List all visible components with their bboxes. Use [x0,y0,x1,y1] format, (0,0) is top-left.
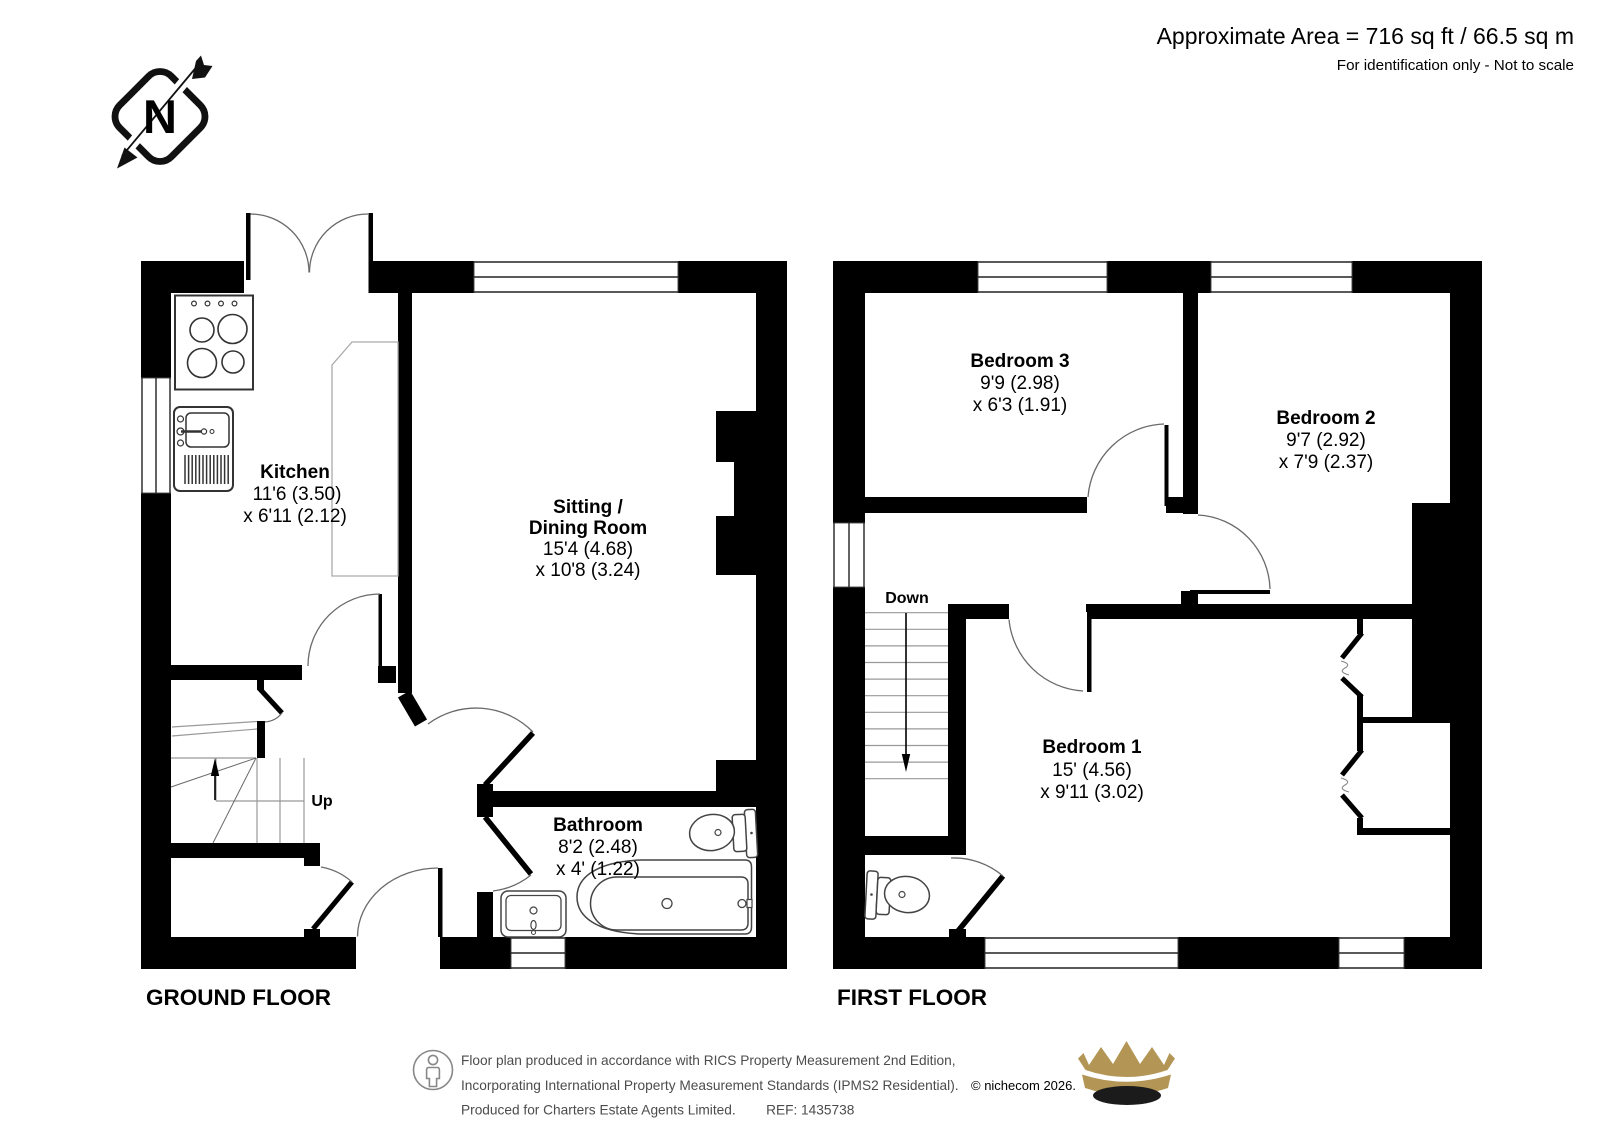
svg-text:9'7 (2.92): 9'7 (2.92) [1286,430,1366,451]
svg-text:Bathroom: Bathroom [553,815,643,836]
svg-text:Up: Up [311,793,333,810]
svg-text:Bedroom 2: Bedroom 2 [1276,408,1375,429]
svg-text:Approximate Area = 716 sq ft /: Approximate Area = 716 sq ft / 66.5 sq m [1157,23,1574,49]
svg-text:Down: Down [885,590,929,607]
svg-text:Bedroom 3: Bedroom 3 [970,351,1069,372]
svg-text:For identification only - Not: For identification only - Not to scale [1337,57,1574,74]
svg-text:Floor plan produced in accorda: Floor plan produced in accordance with R… [461,1053,956,1068]
svg-text:© nichecom 2026.: © nichecom 2026. [971,1078,1076,1093]
svg-text:9'9 (2.98): 9'9 (2.98) [980,373,1060,394]
svg-text:Incorporating International Pr: Incorporating International Property Mea… [461,1078,959,1093]
svg-text:Bedroom 1: Bedroom 1 [1042,737,1142,758]
svg-text:FIRST FLOOR: FIRST FLOOR [837,985,987,1010]
svg-text:Produced for Charters Estate A: Produced for Charters Estate Agents Limi… [461,1103,855,1118]
svg-text:x 6'3 (1.91): x 6'3 (1.91) [973,395,1067,416]
svg-text:x 6'11 (2.12): x 6'11 (2.12) [243,506,347,527]
svg-text:x 7'9 (2.37): x 7'9 (2.37) [1279,452,1373,473]
svg-text:15'4 (4.68): 15'4 (4.68) [543,539,633,560]
svg-text:15' (4.56): 15' (4.56) [1052,760,1132,781]
svg-text:Dining Room: Dining Room [529,518,647,539]
svg-text:Sitting /: Sitting / [553,497,623,518]
svg-text:11'6 (3.50): 11'6 (3.50) [253,484,342,505]
svg-text:x 10'8 (3.24): x 10'8 (3.24) [535,560,640,581]
svg-text:8'2 (2.48): 8'2 (2.48) [558,837,638,858]
svg-text:N: N [143,90,177,143]
svg-text:Kitchen: Kitchen [260,462,330,483]
svg-text:x 9'11 (3.02): x 9'11 (3.02) [1040,782,1144,803]
svg-text:GROUND FLOOR: GROUND FLOOR [146,985,331,1010]
svg-text:x 4' (1.22): x 4' (1.22) [556,859,640,880]
